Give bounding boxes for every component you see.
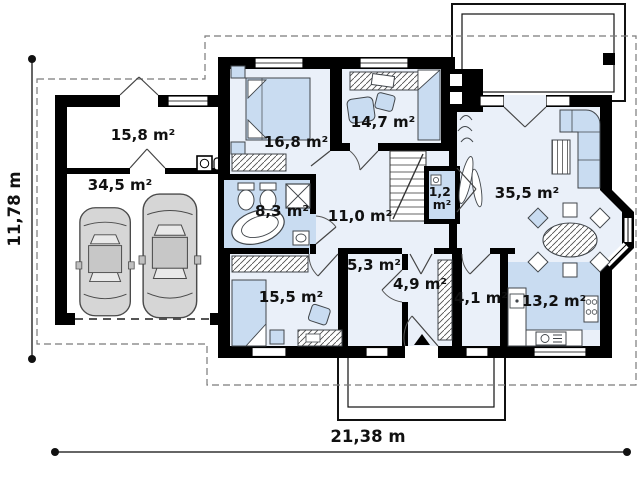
area-label-entry: 4,9 m² [393,275,447,293]
living-window-left [480,96,504,106]
area-label-bathroom: 8,3 m² [255,202,309,220]
storage-window [366,348,388,357]
dimension-side: 11,78 m [5,55,36,363]
kitchen-sink-icon [536,332,566,345]
dining-chair-icon [563,263,577,277]
stairs-icon [390,151,426,221]
wardrobe-icon [232,256,308,272]
nightstand-icon [231,142,245,154]
washer-icon [197,156,212,171]
fireplace-icon [443,69,483,112]
area-label-storage: 5,3 m² [347,256,401,274]
floor-plan: 15,8 m² 34,5 m² 16,8 m² 14,7 m² 8,3 m² 1… [0,0,640,478]
sink-icon [293,231,309,245]
area-label-bedroom3: 15,5 m² [259,288,323,306]
area-label-utility: 15,8 m² [111,126,175,144]
dining-chair-icon [563,203,577,217]
area-label-garage: 34,5 m² [88,176,152,194]
area-label-hallway: 11,0 m² [328,207,392,225]
entrance-porch [338,352,505,420]
area-label-bedroom2: 14,7 m² [351,113,415,131]
area-label-living: 35,5 m² [495,184,559,202]
coffee-table-icon [552,140,570,174]
pantry-window [466,348,488,357]
area-label-bedroom1: 16,8 m² [264,133,328,151]
garage-block [55,77,230,325]
side-dimension-label: 11,78 m [5,171,24,246]
toilet-icon [238,183,254,210]
utility-entry-door-swing [120,77,158,95]
bedroom3-window [252,348,286,357]
area-label-pantry: 4,1 m² [454,289,508,307]
dimension-front: 21,38 m [51,427,631,456]
area-label-kitchen: 13,2 m² [522,292,586,310]
closet-icon [438,260,452,340]
wardrobe-icon [232,154,286,171]
floor-plan-drawing: 15,8 m² 34,5 m² 16,8 m² 14,7 m² 8,3 m² 1… [0,0,640,478]
nightstand-icon [231,66,245,78]
front-dimension-label: 21,38 m [330,427,405,446]
terrace-pillar [603,53,615,65]
nightstand-icon [270,330,284,344]
living-window-right [546,96,570,106]
laptop-icon [371,74,394,88]
